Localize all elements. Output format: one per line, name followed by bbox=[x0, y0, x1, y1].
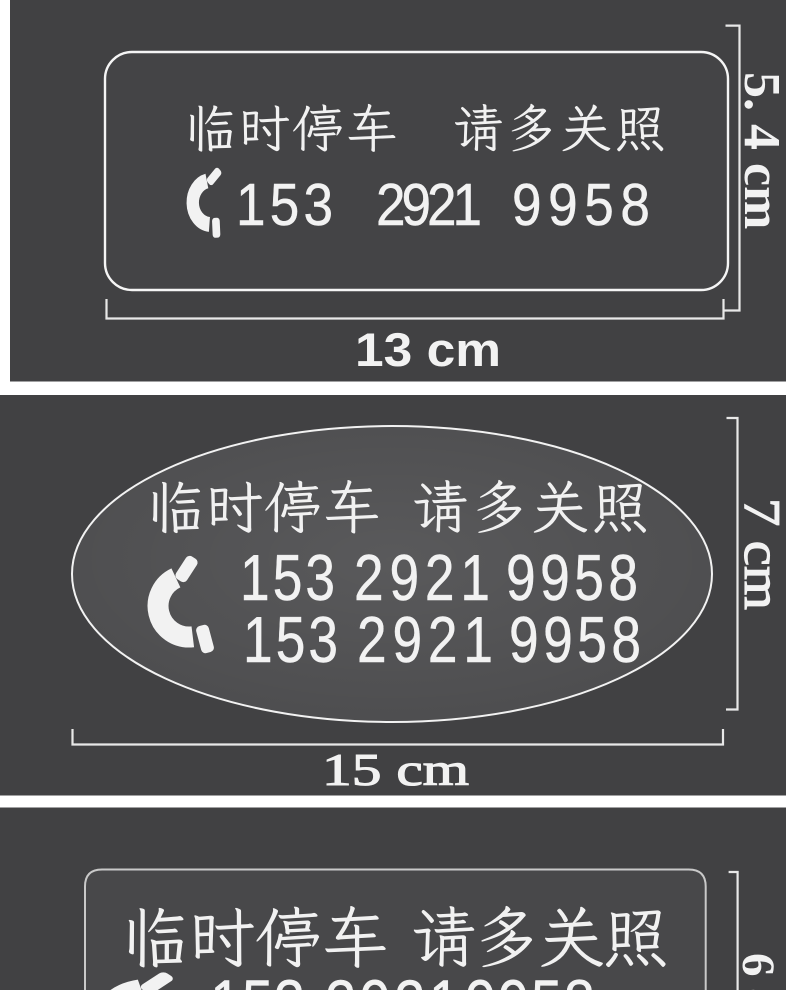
svg-text:153: 153 bbox=[236, 171, 333, 237]
svg-text:15 cm: 15 cm bbox=[322, 745, 469, 795]
svg-text:153: 153 bbox=[243, 603, 338, 676]
svg-text:6 cm: 6 cm bbox=[732, 953, 784, 990]
svg-text:5. 4 cm: 5. 4 cm bbox=[733, 72, 790, 229]
svg-text:153: 153 bbox=[210, 967, 305, 990]
svg-text:2921: 2921 bbox=[376, 171, 482, 237]
svg-text:7 cm: 7 cm bbox=[733, 498, 790, 610]
svg-text:13 cm: 13 cm bbox=[355, 323, 501, 376]
